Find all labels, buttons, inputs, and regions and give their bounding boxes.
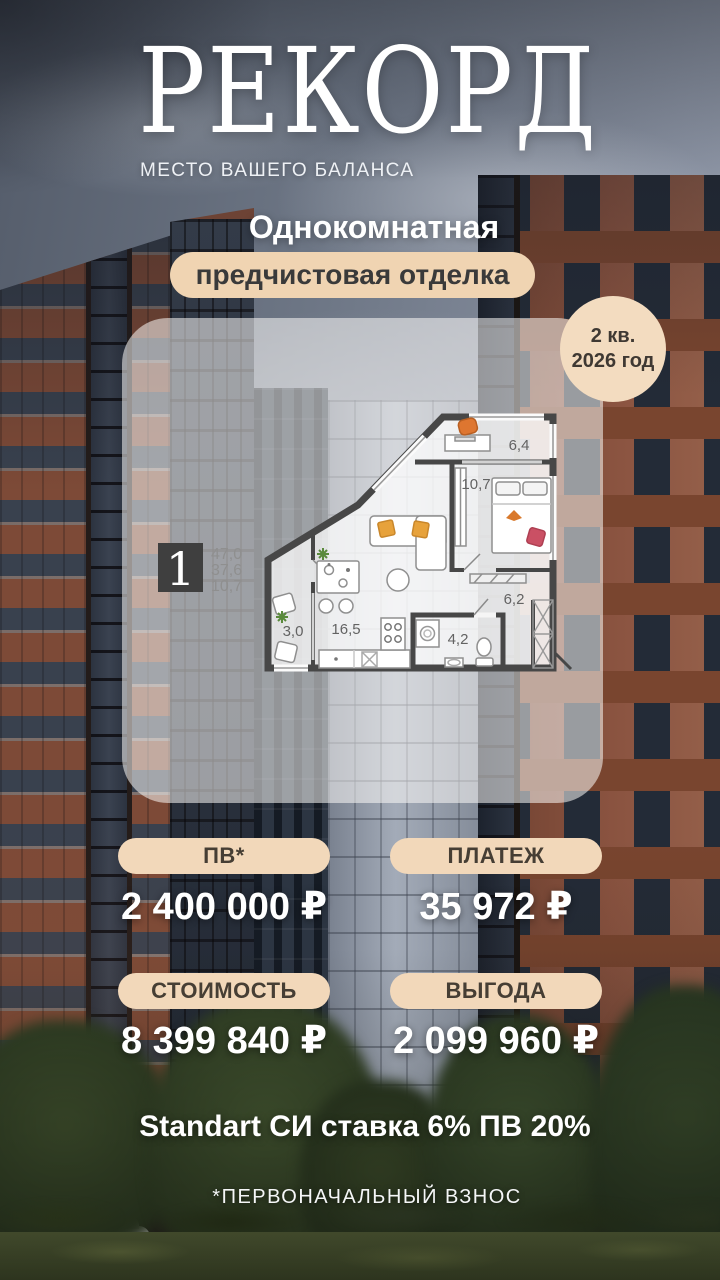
brand-tagline: МЕСТО ВАШЕГО БАЛАНСА xyxy=(140,160,414,182)
price-item-benefit: ВЫГОДА 2 099 960 ₽ xyxy=(390,973,602,1064)
poster: ПРОДУКТЫ РЕКОРД МЕСТО ВАШЕГО БАЛАНСА Одн… xyxy=(0,0,720,1280)
mortgage-program-line: Standart СИ ставка 6% ПВ 20% xyxy=(10,1110,720,1144)
floorplan-svg: 6,4 10,7 6,2 4,2 16,5 3,0 1 47,0 37,6 10… xyxy=(122,318,603,803)
price-badge: СТОИМОСТЬ xyxy=(118,973,330,1009)
completion-year: 2026 год xyxy=(572,349,655,374)
grass-meadow xyxy=(0,1232,720,1280)
price-value: 35 972 ₽ xyxy=(390,884,602,930)
finish-badge: предчистовая отделка xyxy=(170,252,535,298)
room-label-balcony-top: 6,4 xyxy=(509,437,530,454)
area-total: 47,0 xyxy=(211,546,242,563)
room-label-bedroom: 10,7 xyxy=(461,476,490,493)
price-item-payment: ПЛАТЕЖ 35 972 ₽ xyxy=(390,838,602,930)
brand-logo: РЕКОРД xyxy=(138,30,598,154)
area-kitchen: 10,7 xyxy=(211,578,242,595)
room-type-title: Однокомнатная xyxy=(28,209,720,246)
floorplan-card: 6,4 10,7 6,2 4,2 16,5 3,0 1 47,0 37,6 10… xyxy=(122,318,603,803)
room-label-hallway: 6,2 xyxy=(504,591,525,608)
area-living: 37,6 xyxy=(211,562,242,579)
completion-quarter: 2 кв. xyxy=(591,324,636,349)
room-label-bathroom: 4,2 xyxy=(448,631,469,648)
price-item-downpayment: ПВ* 2 400 000 ₽ xyxy=(118,838,330,930)
price-badge: ПВ* xyxy=(118,838,330,874)
room-label-balcony-left: 3,0 xyxy=(283,623,304,640)
price-value: 2 400 000 ₽ xyxy=(118,884,330,930)
price-value: 2 099 960 ₽ xyxy=(390,1018,602,1064)
price-badge: ПЛАТЕЖ xyxy=(390,838,602,874)
completion-date-badge: 2 кв. 2026 год xyxy=(560,296,666,402)
apartment-number: 1 xyxy=(166,542,195,596)
price-item-cost: СТОИМОСТЬ 8 399 840 ₽ xyxy=(118,973,330,1064)
finish-badge-label: предчистовая отделка xyxy=(196,259,510,291)
price-value: 8 399 840 ₽ xyxy=(118,1018,330,1064)
downpayment-footnote: *ПЕРВОНАЧАЛЬНЫЙ ВЗНОС xyxy=(14,1186,720,1209)
room-label-kitchen: 16,5 xyxy=(331,621,360,638)
price-badge: ВЫГОДА xyxy=(390,973,602,1009)
